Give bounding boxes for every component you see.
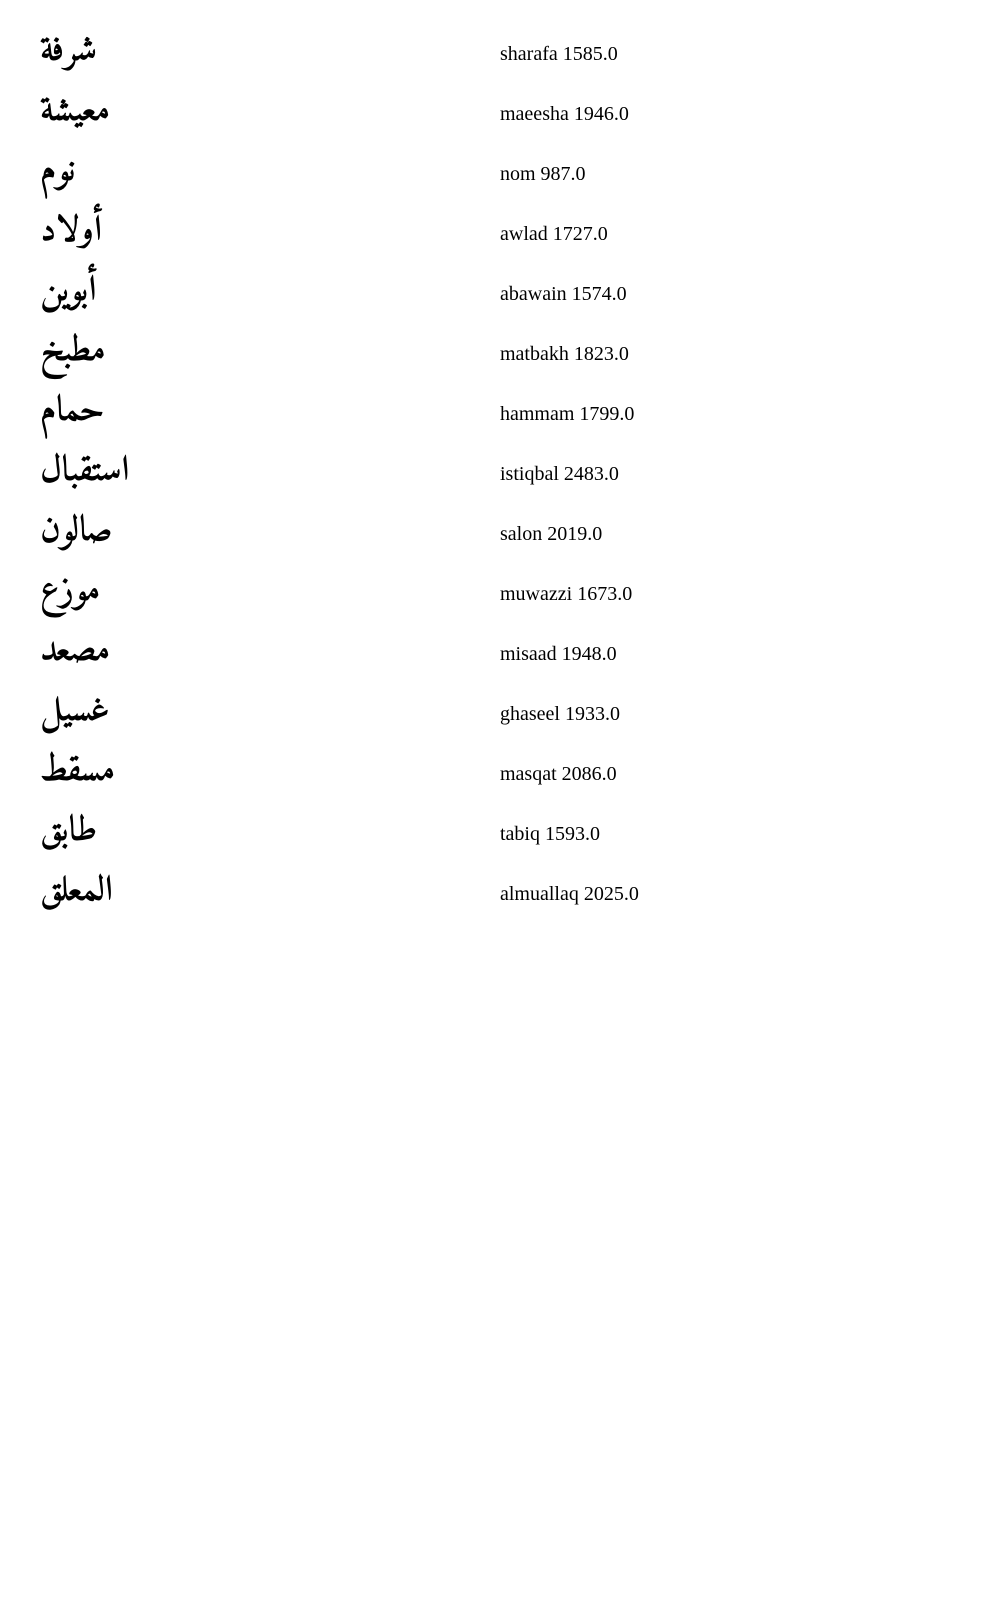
svg-text:sharafa 1585.0: sharafa 1585.0 — [500, 43, 618, 65]
svg-text:istiqbal 2483.0: istiqbal 2483.0 — [500, 463, 619, 485]
svg-text:matbakh 1823.0: matbakh 1823.0 — [500, 343, 629, 365]
svg-text:nom 987.0: nom 987.0 — [500, 163, 586, 185]
svg-text:maeesha 1946.0: maeesha 1946.0 — [500, 103, 629, 125]
svg-text:misaad 1948.0: misaad 1948.0 — [500, 643, 617, 665]
svg-text:hammam 1799.0: hammam 1799.0 — [500, 403, 634, 425]
svg-text:ghaseel 1933.0: ghaseel 1933.0 — [500, 703, 620, 725]
svg-text:almuallaq 2025.0: almuallaq 2025.0 — [500, 883, 639, 905]
svg-text:masqat 2086.0: masqat 2086.0 — [500, 763, 617, 785]
svg-text:tabiq 1593.0: tabiq 1593.0 — [500, 823, 600, 845]
svg-text:awlad 1727.0: awlad 1727.0 — [500, 223, 608, 245]
svg-text:muwazzi 1673.0: muwazzi 1673.0 — [500, 583, 632, 605]
svg-text:abawain 1574.0: abawain 1574.0 — [500, 283, 627, 305]
svg-text:salon 2019.0: salon 2019.0 — [500, 523, 602, 545]
